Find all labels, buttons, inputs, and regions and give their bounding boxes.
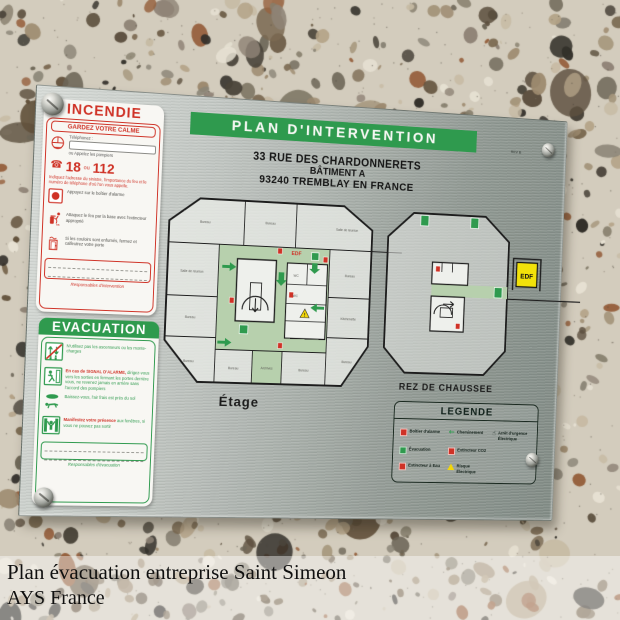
number-112: 112 — [92, 159, 115, 176]
legend-item: Risque Électrique — [447, 463, 489, 474]
evacuation-panel: EVACUATION N'utilisez pas les ascenseurs… — [31, 317, 159, 506]
emergency-exit-icon — [43, 367, 63, 391]
room-label: Bureau — [200, 220, 211, 224]
incendie-panel: INCENDIE GARDEZ VOTRE CALME Téléphonez :… — [36, 98, 165, 316]
caption-line-1: Plan évacuation entreprise Saint Simeon — [7, 560, 346, 586]
legend-item: ☝ Arrêt d'urgence Électrique — [492, 431, 534, 443]
legend-label: Cheminement — [457, 430, 484, 436]
etage-floor-plan: ! EDF Bureau Bureau Salle de réunion Sal… — [159, 193, 408, 396]
evacuation-step-text: Baissez-vous, l'air frais est près du so… — [64, 393, 135, 401]
legend-item: Extincteur CO2 — [448, 447, 490, 455]
revision-text: REV B — [495, 148, 536, 155]
evacuation-icon — [399, 446, 406, 454]
alarm-button-icon — [47, 187, 65, 210]
legend-label: Évacuation — [409, 447, 431, 453]
evacuation-step-text: N'utilisez pas les ascenseurs ou les mon… — [66, 342, 152, 357]
intervention-plate: PLAN D'INTERVENTION REV B 33 RUE DES CHA… — [18, 84, 567, 520]
etage-label: Étage — [218, 393, 259, 410]
evacuation-title: EVACUATION — [39, 317, 160, 338]
legend-label: Extincteur à Eau — [408, 463, 440, 469]
window-presence-icon — [41, 415, 61, 439]
telephone-icon: ☎ — [50, 159, 63, 171]
incendie-body: GARDEZ VOTRE CALME Téléphonez : ou Appel… — [39, 117, 161, 313]
room-label: Bureau — [228, 366, 238, 370]
legend-box: LEGENDE Boîtier d'alarme Évacuation Exti… — [391, 401, 539, 485]
screw-top-right — [542, 143, 555, 158]
responsables-write-area — [40, 441, 148, 461]
rdc-label: REZ DE CHAUSSEE — [399, 382, 493, 395]
room-label: Archives — [261, 366, 273, 370]
etage-edf-label: EDF — [291, 251, 302, 257]
legend-item: Boîtier d'alarme — [400, 428, 444, 437]
water-extinguisher-icon — [399, 463, 406, 471]
plate-title-banner: PLAN D'INTERVENTION — [190, 112, 477, 153]
evacuation-footer: Responsables d'évacuation — [40, 461, 147, 468]
electric-hazard-icon — [447, 463, 454, 470]
co2-extinguisher-icon — [448, 447, 455, 455]
room-label: Bureau — [185, 315, 196, 319]
rdc-edf-label: EDF — [520, 272, 534, 281]
legend-title: LEGENDE — [395, 402, 538, 420]
number-18: 18 — [65, 158, 81, 175]
photo-caption: Plan évacuation entreprise Saint Simeon … — [7, 560, 346, 610]
room-label: Bureau — [341, 360, 351, 364]
legend-label: Risque Électrique — [456, 464, 489, 475]
room-label: Bureau — [265, 221, 275, 225]
legend-label: Boîtier d'alarme — [409, 429, 440, 435]
legend-item: ← Cheminement — [449, 430, 491, 437]
room-label: WC — [293, 274, 299, 278]
room-label: WC — [293, 294, 299, 298]
firefighter-helmet-icon — [49, 133, 67, 156]
etage-staircase — [235, 259, 276, 323]
legend-label: Extincteur CO2 — [457, 448, 486, 454]
path-arrow-icon: ← — [449, 430, 455, 436]
legend-item: Évacuation — [399, 446, 443, 454]
room-label: Bureau — [345, 274, 355, 278]
legend-item: Extincteur à Eau — [399, 463, 443, 471]
no-elevator-icon — [44, 341, 64, 365]
evacuation-body: N'utilisez pas les ascenseurs ou les mon… — [35, 337, 156, 504]
caption-line-2: AYS France — [7, 586, 346, 610]
crawl-low-icon — [42, 392, 62, 414]
emergency-stop-icon: ☝ — [492, 431, 496, 438]
responsables-write-area — [44, 257, 152, 282]
incendie-step-text: Appuyez sur le boîtier d'alarme — [67, 188, 125, 198]
etage-small-rooms — [284, 263, 327, 340]
legend-label: Arrêt d'urgence Électrique — [498, 431, 534, 442]
screw-bottom-right — [525, 453, 538, 467]
fire-extinguisher-icon — [46, 210, 64, 233]
rdc-floor-plan: EDF REZ DE CHAUSSEE — [375, 203, 589, 403]
incendie-step-text: Attaquez le feu par la base avec l'extin… — [66, 211, 154, 227]
address-block: 33 RUE DES CHARDONNERETS BÂTIMENT A 9324… — [199, 148, 470, 198]
closed-door-icon — [45, 233, 63, 256]
room-label: Bureau — [183, 359, 194, 363]
room-label: Kitchenette — [340, 317, 356, 321]
number-separator: ou — [84, 162, 90, 171]
room-label: Bureau — [298, 368, 308, 372]
incendie-step-text: Si les couloirs sont enfumés, fermez et … — [65, 234, 153, 250]
alarm-box-icon — [400, 428, 407, 436]
rdc-edf-box: EDF — [512, 258, 541, 291]
